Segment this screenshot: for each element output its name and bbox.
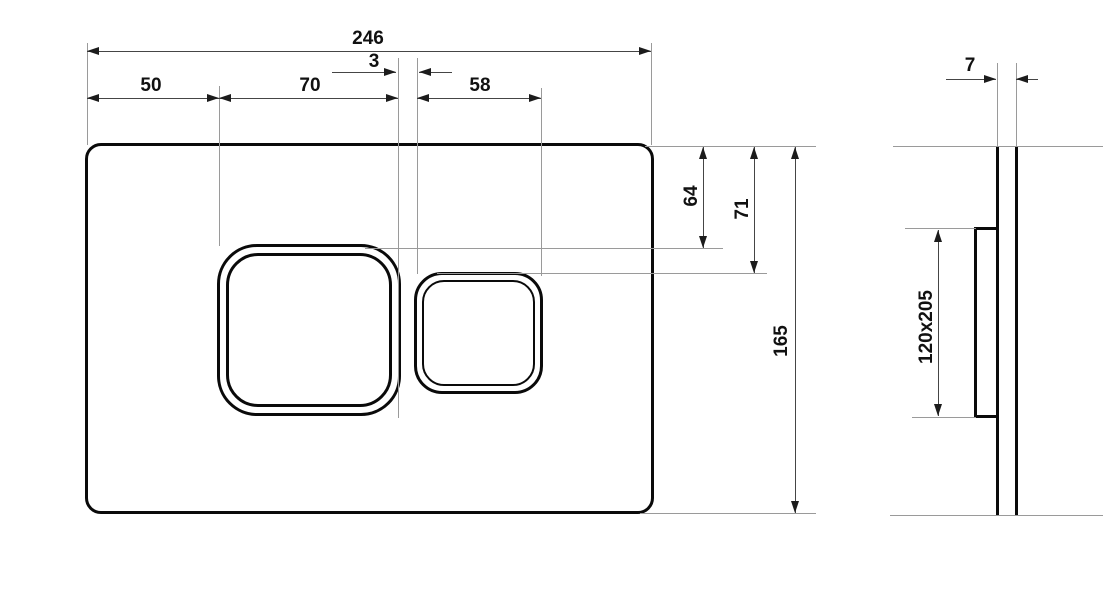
plate-outline-side-view bbox=[996, 146, 1018, 515]
dim-line-50 bbox=[87, 98, 219, 99]
arrowhead-50-left bbox=[87, 94, 99, 102]
mounting-frame-side-view bbox=[974, 227, 998, 418]
ext-line-big-button-right bbox=[398, 58, 399, 418]
arrowhead-246-left bbox=[87, 47, 99, 55]
dim-line-64 bbox=[703, 147, 704, 248]
arrowhead-7-right bbox=[1016, 75, 1028, 83]
arrowhead-58-right bbox=[529, 94, 541, 102]
ref-line-side-bottom bbox=[890, 515, 1103, 516]
ref-line-small-button-top bbox=[437, 273, 767, 274]
arrowhead-120x205-bottom bbox=[934, 404, 942, 416]
dim-line-58 bbox=[417, 98, 541, 99]
arrowhead-246-right bbox=[639, 47, 651, 55]
arrowhead-165-bottom bbox=[791, 501, 799, 513]
ext-line-small-button-left bbox=[417, 58, 418, 274]
arrowhead-64-bottom bbox=[699, 236, 707, 248]
dim-label-7: 7 bbox=[965, 55, 976, 77]
ext-line-plate-right bbox=[651, 43, 652, 145]
ref-line-frame-bottom bbox=[912, 417, 976, 418]
small-flush-button-inner-outline bbox=[422, 280, 535, 386]
arrowhead-120x205-top bbox=[934, 230, 942, 242]
arrowhead-3-left bbox=[384, 68, 396, 76]
dim-label-70: 70 bbox=[299, 75, 320, 97]
ref-line-frame-top bbox=[905, 228, 976, 229]
large-flush-button-inner-outline bbox=[226, 253, 392, 407]
arrowhead-7-left bbox=[984, 75, 996, 83]
ext-line-7-left bbox=[997, 63, 998, 146]
arrowhead-3-right bbox=[419, 68, 431, 76]
technical-drawing-canvas: 246 3 50 70 58 64 71 165 7 120x205 bbox=[0, 0, 1103, 609]
dim-label-71: 71 bbox=[732, 198, 754, 219]
ext-line-50-70-boundary bbox=[219, 86, 220, 246]
dim-line-71 bbox=[754, 147, 755, 273]
dim-label-64: 64 bbox=[681, 185, 703, 206]
dim-line-120x205 bbox=[938, 230, 939, 416]
dim-label-246: 246 bbox=[352, 28, 384, 50]
ref-line-big-button-top bbox=[365, 248, 723, 249]
arrowhead-70-left bbox=[219, 94, 231, 102]
dim-line-165 bbox=[795, 147, 796, 513]
dim-label-58: 58 bbox=[469, 75, 490, 97]
dim-label-3: 3 bbox=[369, 51, 380, 73]
dim-label-50: 50 bbox=[140, 75, 161, 97]
dim-line-70 bbox=[219, 98, 398, 99]
arrowhead-165-top bbox=[791, 147, 799, 159]
arrowhead-50-right bbox=[207, 94, 219, 102]
arrowhead-71-top bbox=[750, 147, 758, 159]
dim-label-120x205: 120x205 bbox=[916, 290, 938, 364]
dim-label-165: 165 bbox=[771, 325, 793, 357]
arrowhead-58-left bbox=[417, 94, 429, 102]
arrowhead-70-right bbox=[386, 94, 398, 102]
arrowhead-71-bottom bbox=[750, 261, 758, 273]
arrowhead-64-top bbox=[699, 147, 707, 159]
ref-line-plate-bottom-right bbox=[640, 513, 816, 514]
ref-line-side-top bbox=[893, 146, 1103, 147]
